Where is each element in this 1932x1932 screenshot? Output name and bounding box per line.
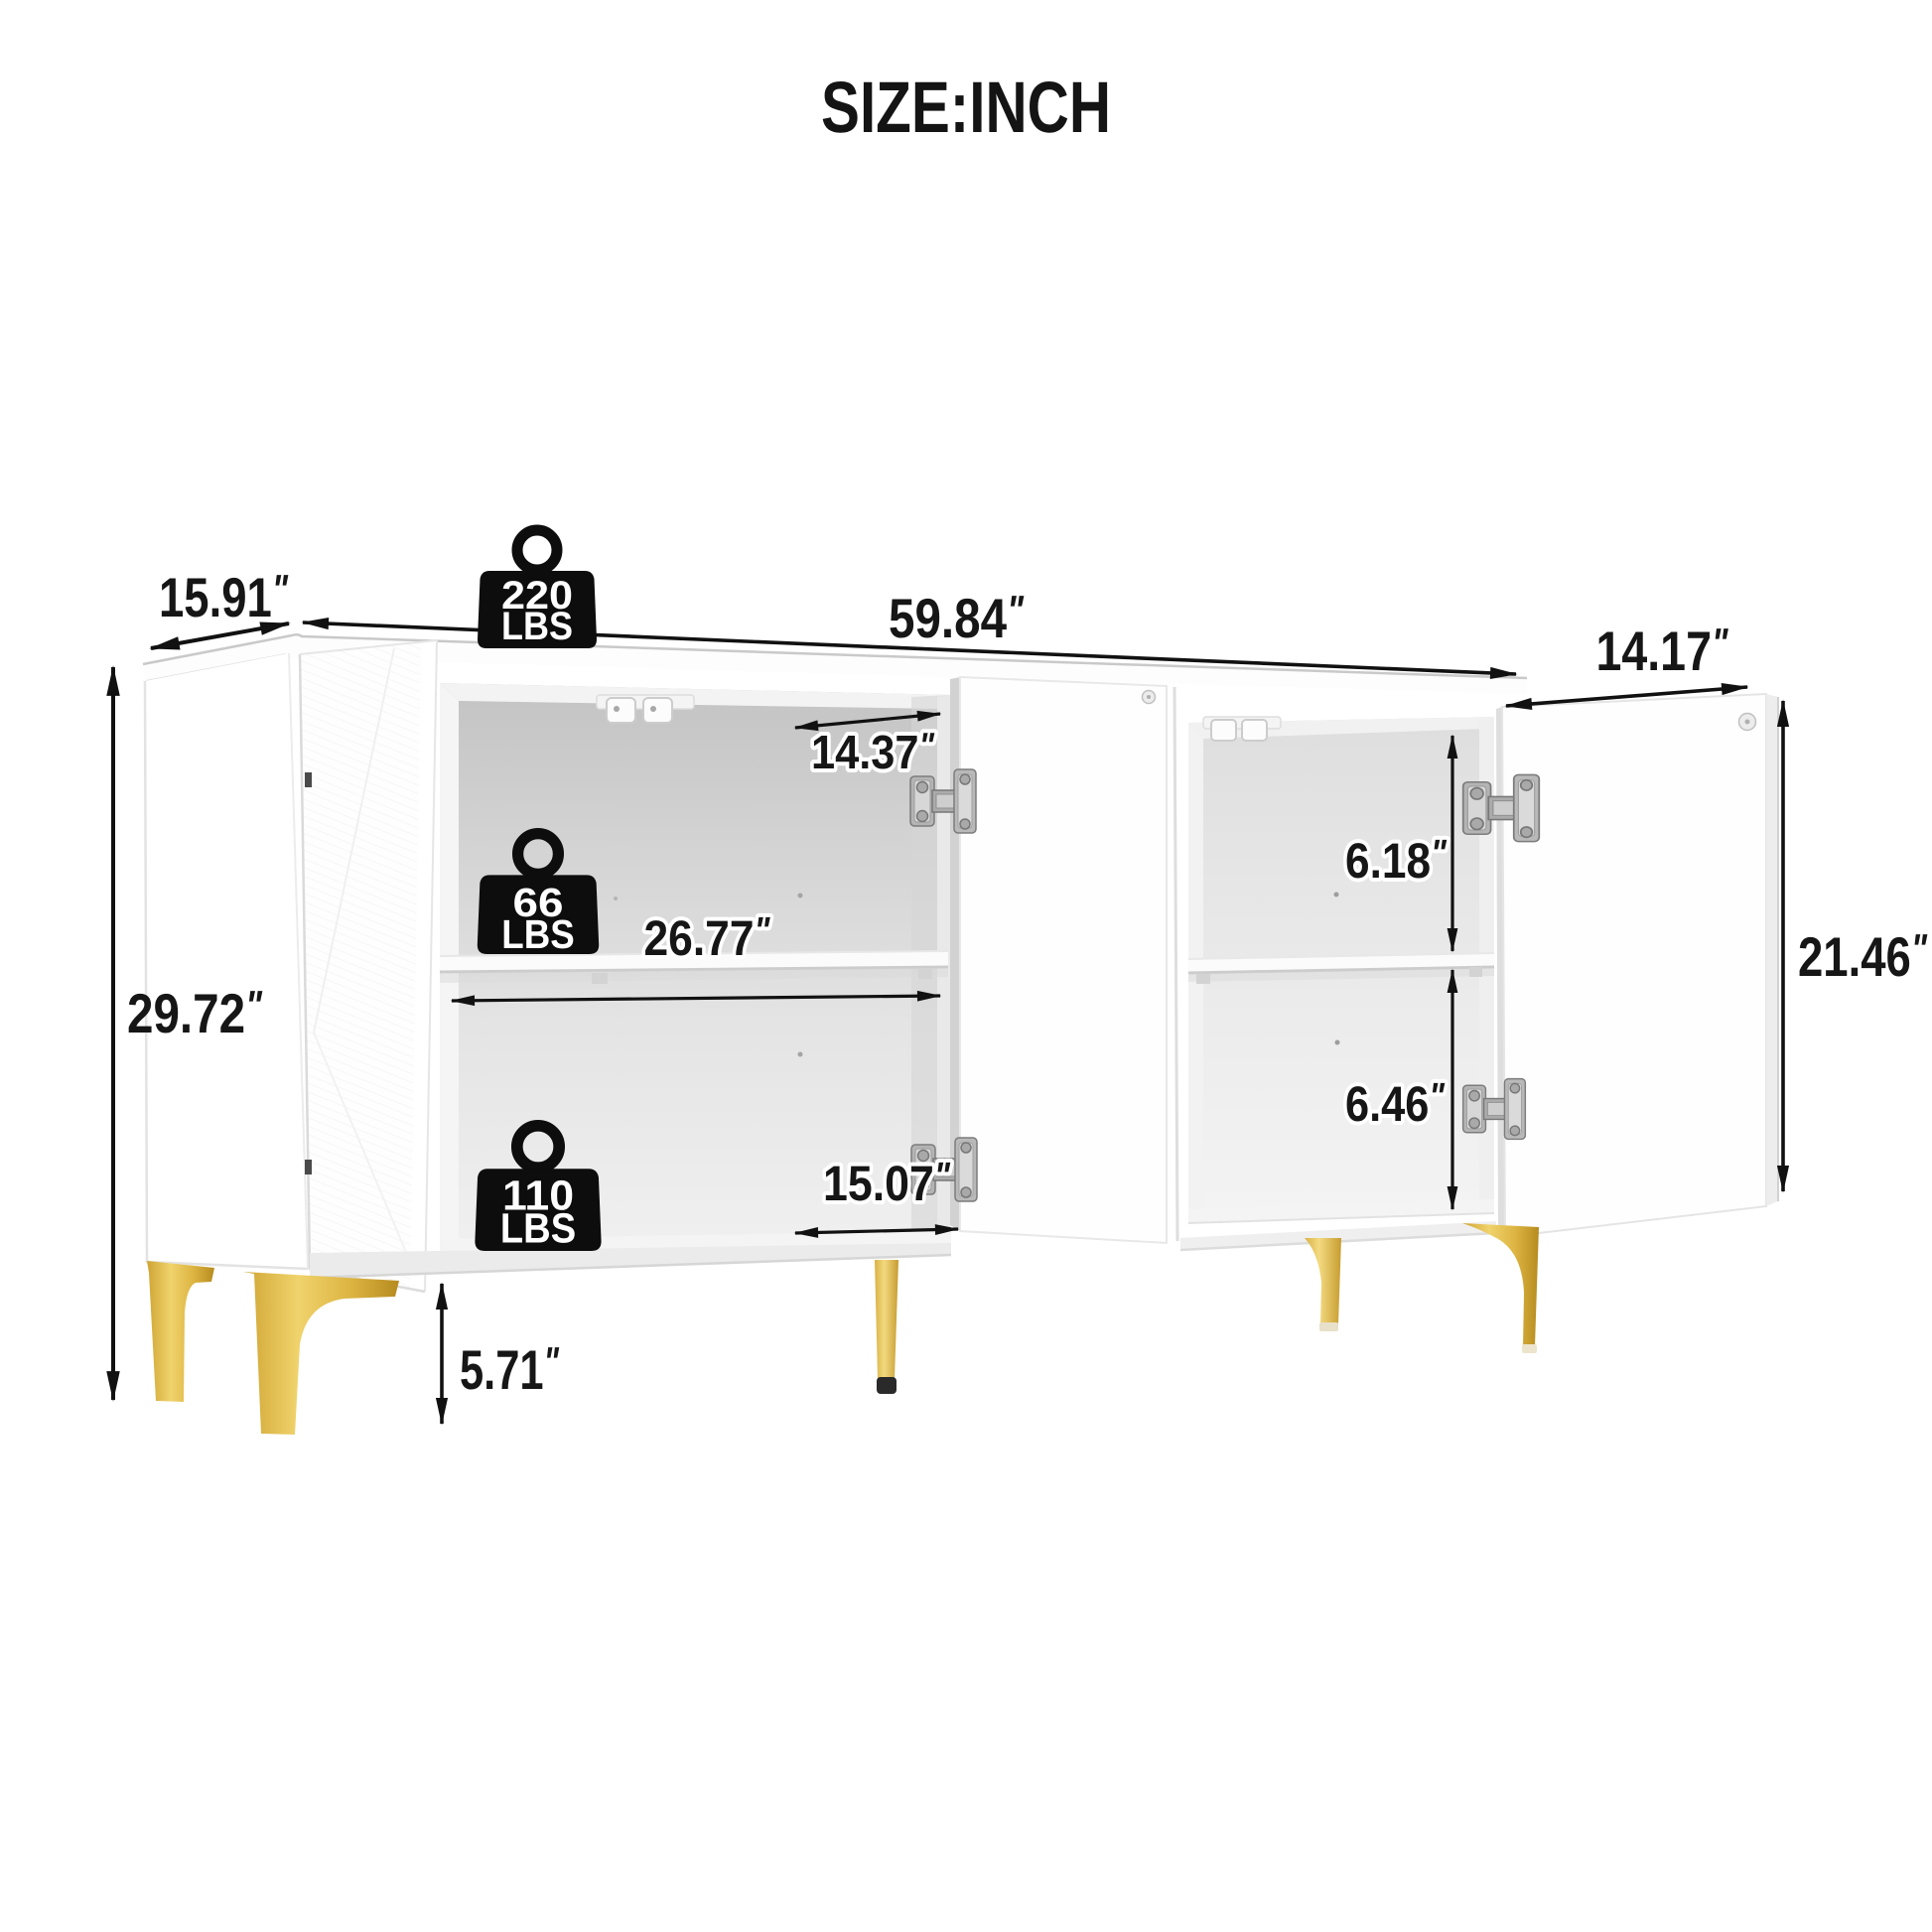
svg-text:29.72": 29.72": [127, 982, 263, 1044]
svg-text:26.77": 26.77": [644, 910, 771, 966]
svg-text:14.37": 14.37": [811, 725, 935, 779]
svg-text:LBS: LBS: [501, 912, 574, 957]
svg-text:SIZE:INCH: SIZE:INCH: [821, 68, 1111, 148]
svg-text:15.91": 15.91": [159, 566, 289, 628]
svg-text:59.84": 59.84": [889, 587, 1025, 649]
svg-text:21.46": 21.46": [1798, 925, 1928, 988]
svg-text:14.17": 14.17": [1596, 620, 1729, 682]
svg-text:LBS: LBS: [500, 1205, 576, 1252]
svg-text:15.07": 15.07": [823, 1156, 951, 1211]
svg-text:LBS: LBS: [501, 605, 573, 648]
